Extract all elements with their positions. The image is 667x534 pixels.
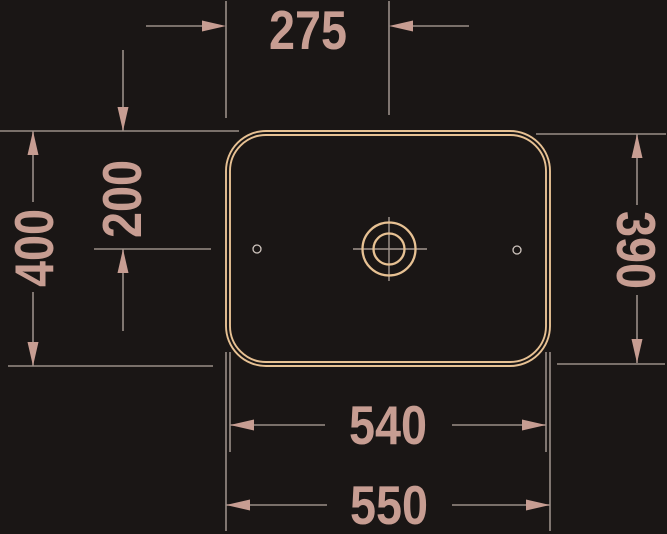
right-fixing-hole-icon [513, 246, 521, 254]
dim-390-arrowhead-bottom [632, 339, 643, 363]
dim-540-label: 540 [349, 394, 427, 455]
dim-200-label: 200 [91, 160, 152, 238]
dim-275-label: 275 [269, 0, 347, 61]
dim-400-label: 400 [3, 209, 64, 287]
dim-390-label: 390 [605, 211, 666, 289]
dim-200-arrowhead-bottom [118, 249, 129, 273]
washbasin-technical-drawing: 275 400 200 390 540 550 [0, 0, 667, 534]
dim-540-arrowhead-right [522, 420, 546, 431]
dim-550-label: 550 [350, 474, 428, 534]
dim-400-arrowhead-bottom [28, 342, 39, 366]
dim-540-arrowhead-left [230, 420, 254, 431]
dim-550-arrowhead-left [226, 500, 250, 511]
dim-400-arrowhead-top [28, 131, 39, 155]
dim-200-arrowhead-top [118, 107, 129, 131]
dim-275-arrowhead-left [202, 21, 226, 32]
dim-275-arrowhead-right [389, 21, 413, 32]
dim-550-arrowhead-right [526, 500, 550, 511]
dim-390-arrowhead-top [632, 134, 643, 158]
left-fixing-hole-icon [253, 245, 261, 253]
drawing-canvas: 275 400 200 390 540 550 [0, 0, 667, 534]
